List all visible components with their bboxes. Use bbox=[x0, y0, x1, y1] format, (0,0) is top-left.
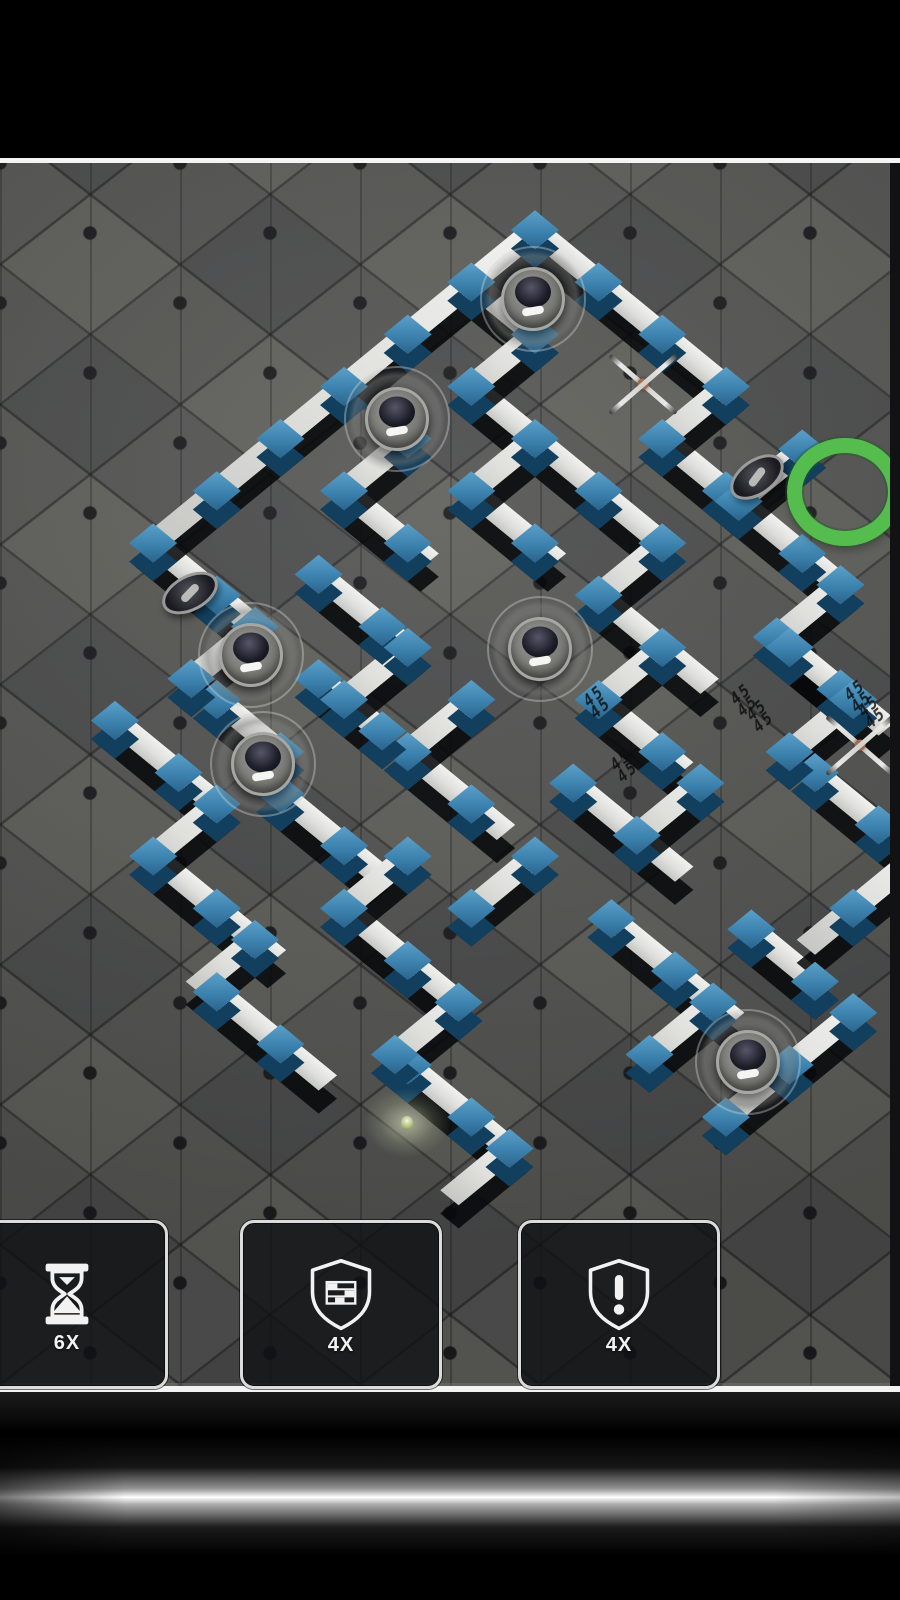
right-edge-shadow bbox=[890, 163, 900, 1386]
camera-lens-glint bbox=[736, 1068, 759, 1080]
camera-lens-glint bbox=[251, 770, 274, 782]
wall-booster-button[interactable]: 4X bbox=[240, 1220, 442, 1389]
player-glow[interactable] bbox=[347, 1075, 467, 1171]
bottom-bar-gradient bbox=[0, 1392, 900, 1432]
top-letterbox-bar bbox=[0, 0, 900, 158]
security-camera bbox=[344, 366, 450, 472]
hourglass-icon bbox=[31, 1258, 103, 1330]
security-camera bbox=[480, 246, 586, 352]
security-camera bbox=[210, 711, 316, 817]
bottom-letterbox-bar bbox=[0, 1392, 900, 1600]
wall-booster-count: 4X bbox=[328, 1334, 354, 1357]
security-camera bbox=[695, 1009, 801, 1115]
shield-alert-icon bbox=[581, 1256, 657, 1332]
time-booster-button[interactable]: 6X bbox=[0, 1220, 168, 1389]
camera-lens-glint bbox=[528, 655, 551, 667]
security-camera bbox=[487, 596, 593, 702]
cross-drone-marker bbox=[816, 701, 900, 789]
security-camera bbox=[198, 602, 304, 708]
maze-playfield[interactable]: 45 4545 4545 4545 4545 4545 45 bbox=[0, 163, 900, 1386]
camera-lens-glint bbox=[521, 305, 544, 317]
camera-lens-glint bbox=[385, 425, 408, 437]
drone-hub bbox=[855, 740, 866, 751]
camera-lens-glint bbox=[239, 661, 262, 673]
cross-drone-marker bbox=[599, 340, 687, 428]
time-booster-count: 6X bbox=[54, 1332, 80, 1355]
shield-brick-icon bbox=[303, 1256, 379, 1332]
alert-booster-button[interactable]: 4X bbox=[518, 1220, 720, 1389]
drone-hub bbox=[638, 379, 649, 390]
goal-ring bbox=[787, 438, 900, 546]
alert-booster-count: 4X bbox=[606, 1334, 632, 1357]
player-dot bbox=[401, 1116, 413, 1130]
game-screen: 45 4545 4545 4545 4545 4545 45 6X 4X bbox=[0, 0, 900, 1600]
metallic-shine-mask bbox=[0, 1436, 900, 1556]
